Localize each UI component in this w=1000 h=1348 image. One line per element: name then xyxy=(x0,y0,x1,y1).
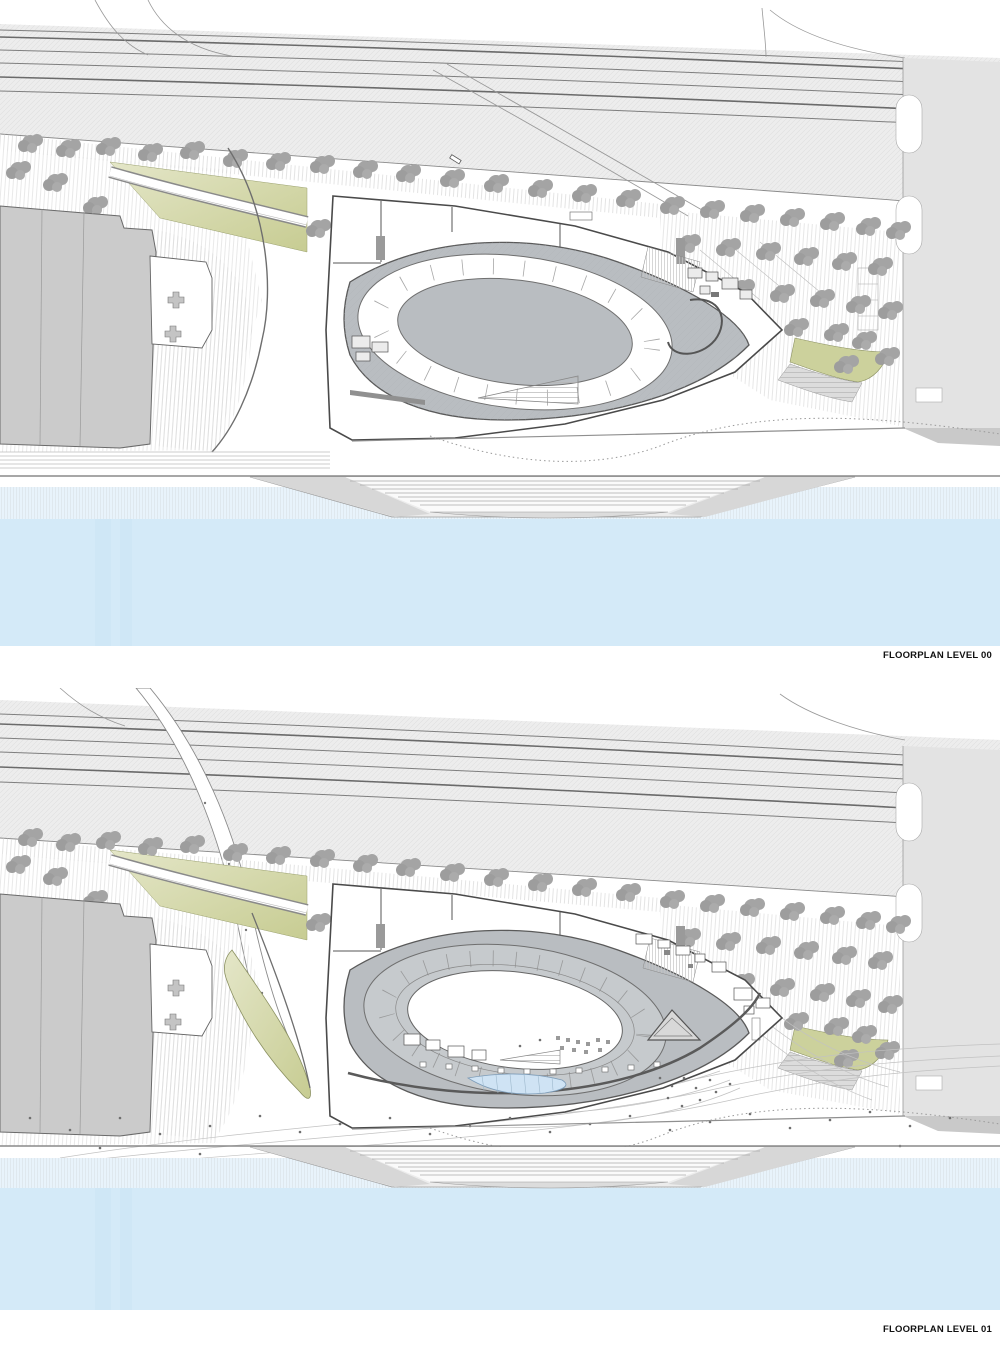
plan-label-level-00: FLOORPLAN LEVEL 00 xyxy=(883,650,992,661)
floorplan-panel-level-00: FLOORPLAN LEVEL 00 xyxy=(0,0,1000,688)
floorplan-panel-level-01: FLOORPLAN LEVEL 01 xyxy=(0,688,1000,1348)
floorplan-drawing-level-01 xyxy=(0,688,1000,1348)
plan-label-level-01: FLOORPLAN LEVEL 01 xyxy=(883,1324,992,1335)
riverside-road xyxy=(896,58,1000,446)
floorplan-drawing-level-00 xyxy=(0,0,1000,660)
riverside-road xyxy=(896,746,1000,1134)
sheet: FLOORPLAN LEVEL 00 xyxy=(0,0,1000,1348)
